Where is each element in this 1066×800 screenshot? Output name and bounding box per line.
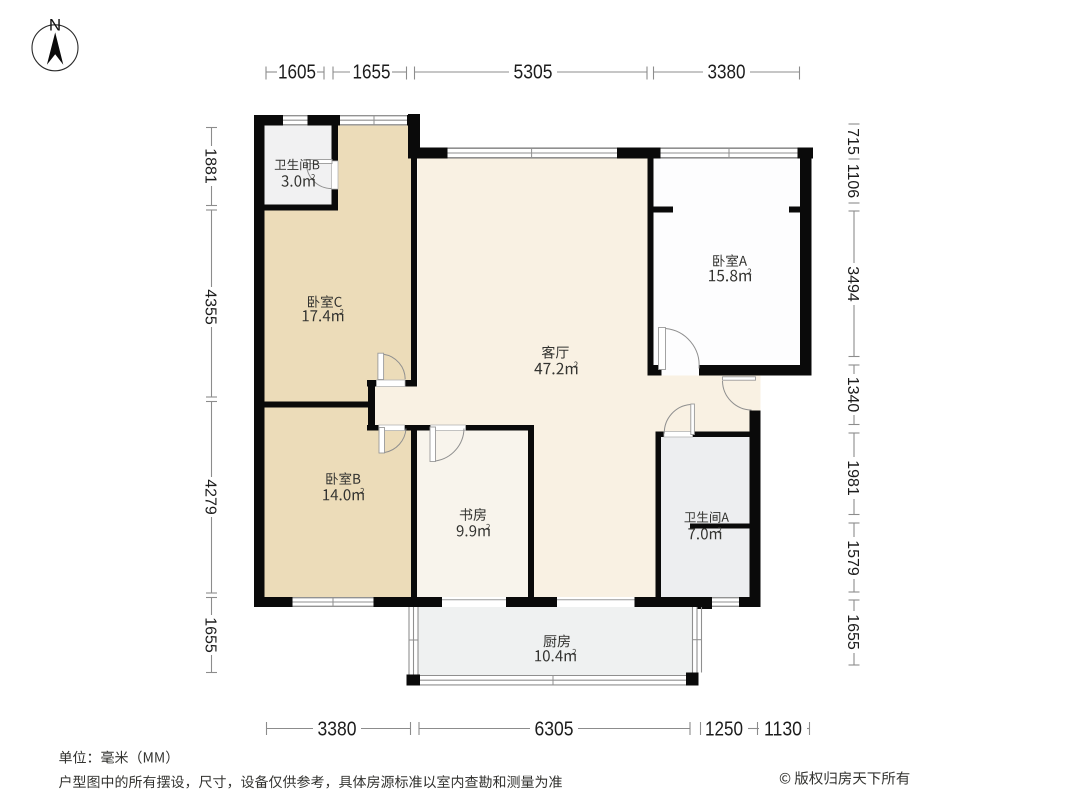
svg-text:1130: 1130: [764, 719, 802, 741]
svg-text:1106: 1106: [844, 164, 861, 199]
svg-text:1655: 1655: [202, 617, 219, 653]
svg-text:4279: 4279: [202, 479, 219, 515]
svg-text:3380: 3380: [708, 62, 746, 84]
svg-text:715: 715: [844, 128, 861, 155]
svg-text:1881: 1881: [202, 148, 219, 184]
svg-text:1250: 1250: [705, 719, 743, 741]
svg-text:1605: 1605: [278, 62, 316, 84]
svg-text:1340: 1340: [844, 377, 861, 413]
svg-text:1579: 1579: [844, 540, 861, 576]
svg-text:1655: 1655: [844, 614, 861, 650]
svg-text:3494: 3494: [844, 266, 861, 302]
svg-text:6305: 6305: [535, 719, 574, 741]
svg-text:1981: 1981: [844, 460, 861, 496]
svg-text:1655: 1655: [353, 62, 391, 84]
svg-text:N: N: [49, 16, 61, 35]
svg-text:5305: 5305: [514, 62, 553, 84]
svg-text:3380: 3380: [318, 719, 357, 741]
svg-text:4355: 4355: [202, 289, 219, 325]
